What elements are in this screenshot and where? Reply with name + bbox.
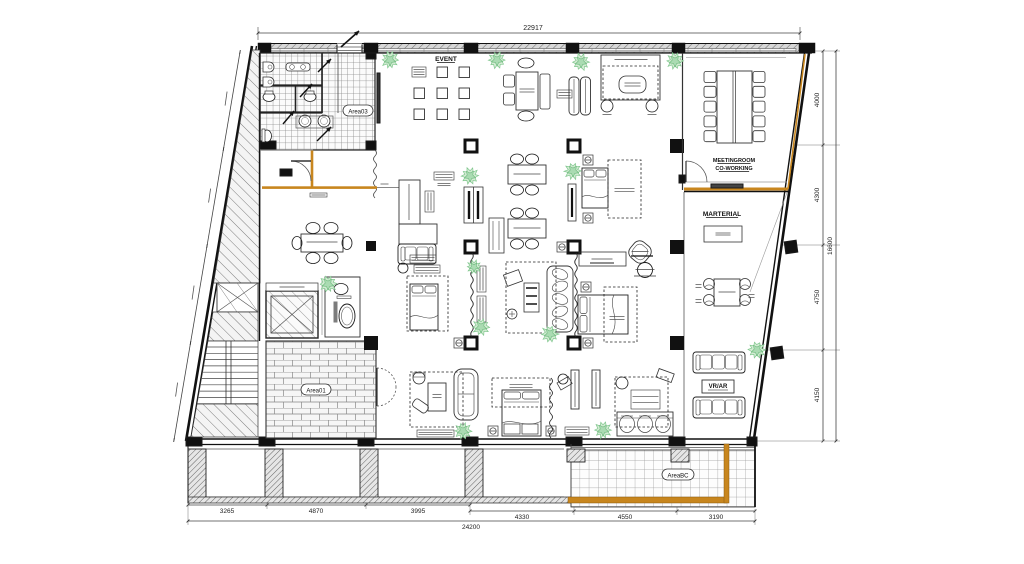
svg-text:24200: 24200: [462, 524, 480, 531]
svg-text:4000: 4000: [814, 92, 821, 107]
svg-text:4150: 4150: [814, 387, 821, 402]
svg-text:MARTERIAL: MARTERIAL: [703, 211, 741, 218]
svg-text:22917: 22917: [523, 25, 543, 32]
svg-text:16600: 16600: [827, 237, 834, 255]
svg-text:MEETINGROOM: MEETINGROOM: [713, 158, 756, 164]
svg-text:AreaBC: AreaBC: [667, 474, 689, 480]
svg-text:3265: 3265: [220, 508, 235, 515]
svg-text:Area03: Area03: [348, 110, 368, 116]
svg-text:EVENT: EVENT: [435, 56, 457, 63]
svg-text:Area01: Area01: [306, 389, 326, 395]
svg-text:4550: 4550: [618, 514, 633, 521]
svg-text:3995: 3995: [411, 508, 426, 515]
svg-text:3190: 3190: [709, 514, 724, 521]
svg-text:4330: 4330: [515, 514, 530, 521]
svg-text:CO-WORKING: CO-WORKING: [715, 166, 752, 172]
svg-text:VR/AR: VR/AR: [709, 384, 728, 390]
svg-text:4870: 4870: [309, 508, 324, 515]
svg-text:4300: 4300: [814, 187, 821, 202]
svg-text:4750: 4750: [814, 289, 821, 304]
